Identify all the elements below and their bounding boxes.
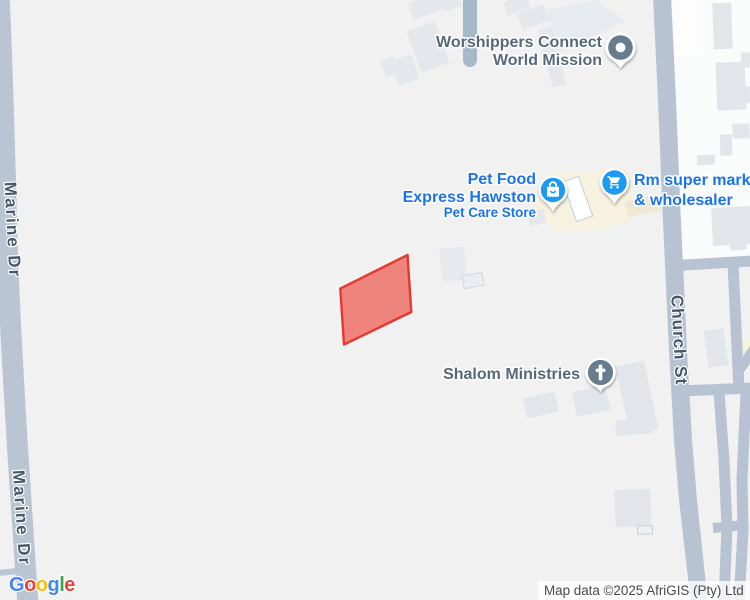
svg-text:Google: Google: [9, 574, 75, 596]
svg-text:Rm super market: Rm super market: [634, 172, 750, 189]
svg-text:Express Hawston: Express Hawston: [403, 189, 536, 206]
svg-text:Map data ©2025 AfriGIS (Pty) L: Map data ©2025 AfriGIS (Pty) Ltd: [544, 583, 744, 598]
svg-text:World Mission: World Mission: [493, 52, 602, 69]
svg-text:Shalom Ministries: Shalom Ministries: [443, 366, 580, 383]
svg-text:& wholesaler: & wholesaler: [634, 192, 733, 209]
svg-text:Worshippers Connect: Worshippers Connect: [436, 34, 603, 51]
svg-text:Pet Care Store: Pet Care Store: [444, 205, 536, 220]
svg-text:Pet Food: Pet Food: [468, 171, 536, 188]
